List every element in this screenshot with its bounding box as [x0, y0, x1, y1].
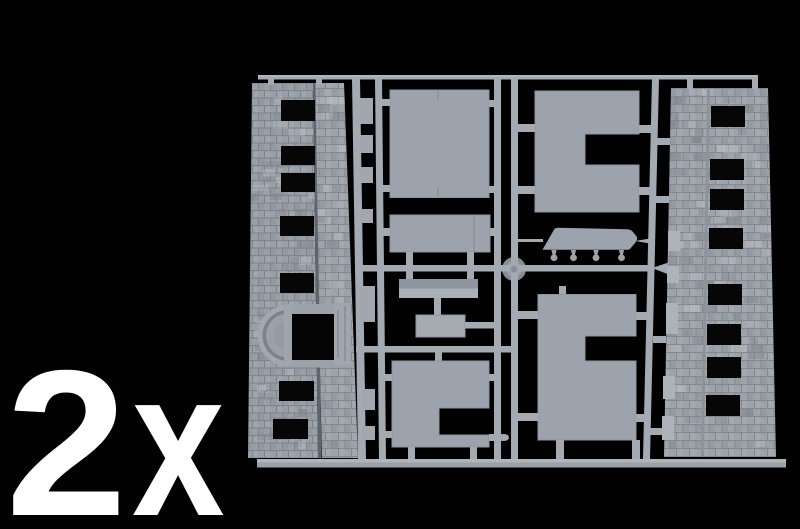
svg-text:2: 2 — [6, 328, 127, 529]
svg-text:x: x — [132, 326, 225, 529]
